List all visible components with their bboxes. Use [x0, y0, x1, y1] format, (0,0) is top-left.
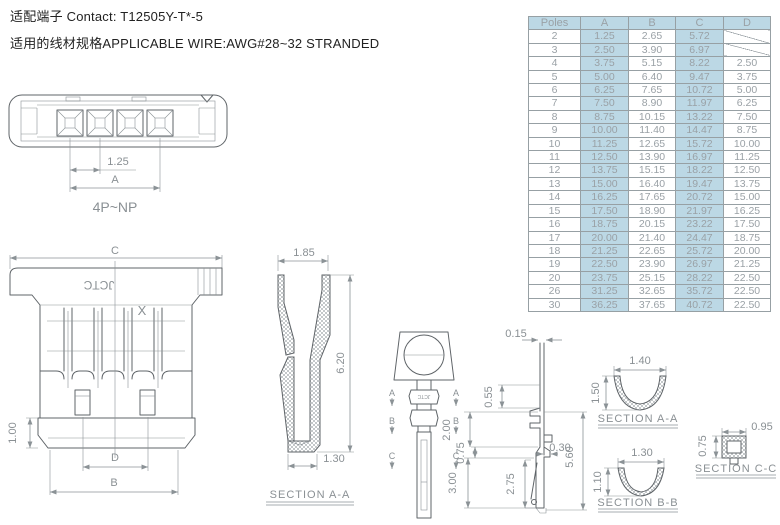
table-cell	[724, 43, 771, 56]
crimp-length-dimension: 3.00	[447, 472, 459, 493]
step-dimension: 0.75	[455, 442, 467, 463]
width-c-dimension: C	[111, 245, 119, 257]
table-cell: 7.65	[629, 84, 676, 97]
table-cell: 22.50	[724, 285, 771, 298]
table-cell: 2.65	[629, 30, 676, 43]
table-cell: 11.40	[629, 124, 676, 137]
poles-range-label: 4P~NP	[93, 199, 138, 215]
body-width-dimension: B	[110, 477, 117, 489]
terminal-section-aa-label: SECTION A-A	[598, 413, 679, 425]
section-cc-height: 0.75	[697, 435, 709, 456]
pitch-dimension: 1.25	[107, 156, 128, 168]
table-cell: 5.00	[724, 84, 771, 97]
terminal-section-bb-drawing: 1.30 1.10 SECTION B-B	[596, 446, 680, 510]
table-row: 55.006.409.473.75	[529, 70, 771, 83]
table-cell: 5	[529, 70, 581, 83]
table-cell: 20	[529, 271, 581, 284]
terminal-brand-text: JCTC	[417, 393, 430, 399]
table-cell: 32.65	[629, 285, 676, 298]
applicable-wire-text: 适用的线材规格APPLICABLE WIRE:AWG#28~32 STRANDE…	[10, 33, 379, 52]
table-cell: 5.00	[581, 70, 629, 83]
table-cell: 15.00	[724, 191, 771, 204]
table-row: 66.257.6510.725.00	[529, 84, 771, 97]
front-width-dimension-c: C	[10, 245, 222, 269]
table-cell: 17.50	[581, 204, 629, 217]
table-row: 32.503.906.97	[529, 43, 771, 56]
table-cell: 22.50	[724, 298, 771, 311]
table-cell: 30	[529, 298, 581, 311]
table-cell: 13	[529, 177, 581, 190]
table-cell: 13.75	[724, 177, 771, 190]
housing-front-outline: JCTC X	[10, 261, 222, 458]
table-cell: 21.97	[676, 204, 724, 217]
table-cell: 23.90	[629, 258, 676, 271]
table-cell: 8.75	[724, 124, 771, 137]
table-row: 1821.2522.6525.7220.00	[529, 244, 771, 257]
table-cell: 25.15	[629, 271, 676, 284]
table-cell: 20.15	[629, 218, 676, 231]
table-cell: 8.22	[676, 57, 724, 70]
section-aa-width: 1.40	[629, 355, 650, 367]
table-cell: 16.40	[629, 177, 676, 190]
table-cell: 11.25	[724, 151, 771, 164]
contact-spec-text: 适配端子 Contact: T12505Y-T*-5	[10, 6, 203, 25]
table-cell: 8	[529, 110, 581, 123]
table-cell: 22.50	[724, 271, 771, 284]
cavity-mark: X	[138, 303, 147, 318]
marker-b-left: B	[389, 416, 395, 426]
terminal-side-dimensions: 0.15 0.55 2.00 0.75 3.00 0.30 2.75 5.60	[441, 328, 587, 510]
table-cell: 16.25	[724, 204, 771, 217]
table-row: 1720.0021.4024.4718.75	[529, 231, 771, 244]
table-cell: 21.25	[724, 258, 771, 271]
table-cell: 12	[529, 164, 581, 177]
terminal-section-bb-label: SECTION B-B	[597, 497, 678, 509]
section-bb-width: 1.30	[631, 447, 652, 459]
table-cell: 10.15	[629, 110, 676, 123]
table-cell: 6.97	[676, 43, 724, 56]
table-cell: 18.22	[676, 164, 724, 177]
slot-span-dimension: D	[111, 452, 119, 464]
table-cell: 11.97	[676, 97, 724, 110]
table-row: 88.7510.1513.227.50	[529, 110, 771, 123]
span-dimension: A	[111, 174, 119, 186]
table-header-row: PolesABCD	[529, 17, 771, 30]
tip-thickness-dimension: 0.15	[505, 328, 526, 340]
table-row: 1922.5023.9026.9721.25	[529, 258, 771, 271]
table-cell: 31.25	[581, 285, 629, 298]
latch-height-dimension: 1.00	[7, 422, 19, 443]
table-cell: 17.50	[724, 218, 771, 231]
datasheet-page: 适配端子 Contact: T12505Y-T*-5 适用的线材规格APPLIC…	[0, 0, 780, 525]
section-bottom-width: 1.30	[323, 453, 344, 465]
table-cell: 12.50	[724, 164, 771, 177]
table-cell: 7.50	[581, 97, 629, 110]
section-aa-label-group: SECTION A-A	[266, 489, 354, 505]
spec-table-body: 21.252.655.7232.503.906.9743.755.158.222…	[529, 30, 771, 312]
table-row: 910.0011.4014.478.75	[529, 124, 771, 137]
table-cell: 16.25	[581, 191, 629, 204]
front-bottom-dimensions: 1.00 D B	[7, 417, 178, 495]
table-cell: 11	[529, 151, 581, 164]
table-cell: 13.90	[629, 151, 676, 164]
table-cell: 6.25	[581, 84, 629, 97]
terminal-section-cc-label: SECTION C-C	[695, 463, 778, 475]
housing-section-aa-drawing: 1.85 6.20 1.30 SECTION A-A	[262, 245, 362, 510]
table-cell: 26	[529, 285, 581, 298]
lance-length-dimension: 2.75	[505, 473, 517, 494]
table-cell: 20.72	[676, 191, 724, 204]
table-cell: 15.00	[581, 177, 629, 190]
table-cell: 6.25	[724, 97, 771, 110]
table-cell	[724, 30, 771, 43]
table-cell: 5.15	[629, 57, 676, 70]
total-height-dimension: 5.60	[564, 446, 576, 467]
table-cell: 17.65	[629, 191, 676, 204]
table-cell: 16.97	[676, 151, 724, 164]
poles-dimension-table: PolesABCD 21.252.655.7232.503.906.9743.7…	[528, 16, 771, 312]
table-cell: 22.50	[581, 258, 629, 271]
table-cell: 8.90	[629, 97, 676, 110]
table-cell: 24.47	[676, 231, 724, 244]
housing-top-view-drawing: 1.25 A 4P~NP	[8, 92, 233, 220]
table-header-cell: A	[581, 17, 629, 30]
terminal-body: JCTC	[409, 380, 439, 518]
table-row: 77.508.9011.976.25	[529, 97, 771, 110]
table-cell: 21.25	[581, 244, 629, 257]
table-cell: 16	[529, 218, 581, 231]
table-cell: 9	[529, 124, 581, 137]
table-cell: 20.00	[724, 244, 771, 257]
section-aa-height: 1.50	[590, 382, 602, 403]
table-cell: 15.72	[676, 137, 724, 150]
table-cell: 9.47	[676, 70, 724, 83]
section-cc-width: 0.95	[751, 421, 772, 433]
table-cell: 23.22	[676, 218, 724, 231]
table-cell: 4	[529, 57, 581, 70]
table-cell: 3.75	[581, 57, 629, 70]
table-cell: 26.97	[676, 258, 724, 271]
table-cell: 37.65	[629, 298, 676, 311]
table-cell: 13.75	[581, 164, 629, 177]
table-cell: 2.50	[581, 43, 629, 56]
table-row: 1112.5013.9016.9711.25	[529, 151, 771, 164]
table-cell: 3.75	[724, 70, 771, 83]
terminal-section-aa-drawing: 1.40 1.50 SECTION A-A	[596, 352, 680, 428]
table-header-cell: B	[629, 17, 676, 30]
table-cell: 10.00	[724, 137, 771, 150]
table-cell: 23.75	[581, 271, 629, 284]
terminal-section-cc-drawing: 0.95 0.75 SECTION C-C	[692, 406, 780, 478]
table-cell: 17	[529, 231, 581, 244]
table-row: 2631.2532.6535.7222.50	[529, 285, 771, 298]
table-cell: 2	[529, 30, 581, 43]
table-cell: 11.25	[581, 137, 629, 150]
housing-top-outline	[9, 95, 227, 147]
table-cell: 10.00	[581, 124, 629, 137]
table-row: 2023.7525.1528.2222.50	[529, 271, 771, 284]
table-cell: 6.40	[629, 70, 676, 83]
table-cell: 5.72	[676, 30, 724, 43]
housing-cavities	[57, 110, 173, 136]
terminal-side-drawing: 0.15 0.55 2.00 0.75 3.00 0.30 2.75 5.60	[440, 323, 595, 525]
table-cell: 18.90	[629, 204, 676, 217]
section-walls	[278, 275, 330, 452]
table-cell: 25.72	[676, 244, 724, 257]
table-cell: 20.00	[581, 231, 629, 244]
table-cell: 14	[529, 191, 581, 204]
table-cell: 6	[529, 84, 581, 97]
table-cell: 40.72	[676, 298, 724, 311]
table-row: 43.755.158.222.50	[529, 57, 771, 70]
table-cell: 2.50	[724, 57, 771, 70]
table-cell: 21.40	[629, 231, 676, 244]
top-bend-dimension: 0.55	[483, 386, 495, 407]
table-header-cell: D	[724, 17, 771, 30]
section-top-dimension: 1.85	[278, 247, 328, 271]
table-cell: 28.22	[676, 271, 724, 284]
table-header-cell: C	[676, 17, 724, 30]
table-row: 1315.0016.4019.4713.75	[529, 177, 771, 190]
table-row: 1011.2512.6515.7210.00	[529, 137, 771, 150]
table-cell: 14.47	[676, 124, 724, 137]
table-row: 21.252.655.72	[529, 30, 771, 43]
table-cell: 36.25	[581, 298, 629, 311]
table-cell: 8.75	[581, 110, 629, 123]
section-bb-height: 1.10	[592, 471, 604, 492]
section-bottom-dimension: 1.30	[288, 453, 345, 470]
terminal-side-profile	[530, 343, 552, 513]
table-cell: 15.15	[629, 164, 676, 177]
table-row: 1517.5018.9021.9716.25	[529, 204, 771, 217]
table-cell: 7	[529, 97, 581, 110]
table-cell: 10	[529, 137, 581, 150]
section-height: 6.20	[335, 352, 347, 373]
table-cell: 10.72	[676, 84, 724, 97]
marker-c-left: C	[389, 451, 396, 461]
table-cell: 12.65	[629, 137, 676, 150]
brand-text: JCTC	[83, 278, 114, 292]
housing-front-view-drawing: C JCTC X 1.00 D	[2, 243, 242, 505]
table-cell: 18.75	[724, 231, 771, 244]
table-cell: 3	[529, 43, 581, 56]
table-cell: 13.22	[676, 110, 724, 123]
table-row: 1213.7515.1518.2212.50	[529, 164, 771, 177]
table-cell: 19	[529, 258, 581, 271]
table-row: 1416.2517.6520.7215.00	[529, 191, 771, 204]
table-cell: 35.72	[676, 285, 724, 298]
table-header-cell: Poles	[529, 17, 581, 30]
table-cell: 22.65	[629, 244, 676, 257]
section-aa-label: SECTION A-A	[270, 489, 351, 501]
table-cell: 15	[529, 204, 581, 217]
table-cell: 19.47	[676, 177, 724, 190]
table-cell: 7.50	[724, 110, 771, 123]
table-cell: 18.75	[581, 218, 629, 231]
section-bb-shape	[618, 468, 664, 496]
table-row: 1618.7520.1523.2217.50	[529, 218, 771, 231]
section-aa-shape	[614, 376, 666, 410]
table-cell: 1.25	[581, 30, 629, 43]
retention-box-dimension: 2.00	[441, 419, 453, 440]
top-view-dimensions: 1.25 A 4P~NP	[70, 138, 160, 215]
section-top-width: 1.85	[293, 247, 314, 259]
table-cell: 12.50	[581, 151, 629, 164]
table-cell: 18	[529, 244, 581, 257]
marker-a-left: A	[389, 388, 395, 398]
section-cc-shape	[722, 436, 746, 458]
table-cell: 3.90	[629, 43, 676, 56]
table-row: 3036.2537.6540.7222.50	[529, 298, 771, 311]
